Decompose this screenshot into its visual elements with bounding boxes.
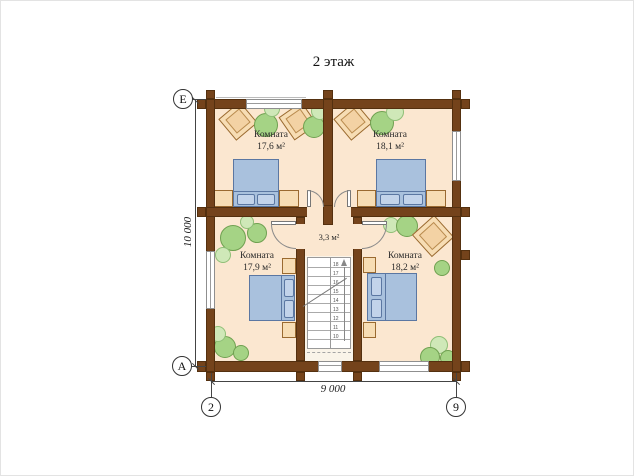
stair-step-number: 18 [333,262,339,268]
log-end [296,372,305,381]
nightstand [426,190,446,207]
log-end [461,361,470,372]
stair-step-number: 11 [333,325,338,331]
axis-marker-col-right: 9 [446,397,466,417]
pillow [257,194,275,205]
dimension-label-horizontal: 9 000 [283,383,383,395]
floor-plan: 2 этаж Комната 17,6 м² Комната 18,1 м² К… [0,0,634,476]
stair-step-number: 14 [333,298,339,304]
stair-step-number: 10 [333,334,339,340]
log-end [323,205,333,225]
window [206,251,215,309]
axis-leader-line [211,373,212,397]
room-name: Комната [340,129,440,141]
dimension-line-horizontal [211,381,456,382]
room-name: Комната [207,250,307,262]
log-end [206,90,215,99]
room-name: Комната [355,250,455,262]
room-area: 17,6 м² [221,141,321,153]
axis-marker-top: Е [173,89,193,109]
axis-marker-bottom: А [172,356,192,376]
stair-step-number: 15 [333,289,339,295]
bed-blanket-line [376,191,426,192]
axis-leader-line [192,366,206,367]
plant [240,215,254,229]
room-label-top-right: Комната 18,1 м² [340,129,440,153]
pillow [237,194,255,205]
room-label-bottom-left: Комната 17,9 м² [207,250,307,274]
nightstand [279,190,299,207]
wall-left [206,99,215,372]
dimension-line-vertical [195,100,196,367]
plant [233,345,249,361]
door-opening [333,207,351,217]
pillow [403,194,423,205]
nightstand [214,190,233,207]
log-end [461,250,470,260]
window [318,361,342,372]
stair-step-number: 17 [333,271,339,277]
door-opening [353,224,362,249]
stair-step-number: 12 [333,316,339,322]
log-end [323,90,333,99]
room-label-bottom-right: Комната 18,2 м² [355,250,455,274]
hall-area-label: 3,3 м² [305,232,353,242]
log-end [461,99,470,109]
nightstand [357,190,376,207]
page-title: 2 этаж [206,54,461,71]
bed-blanket-line [281,275,282,321]
wall-divider-upper [323,99,333,217]
log-end [197,207,206,217]
pillow [284,300,294,318]
window [246,99,302,109]
door-opening [296,224,305,249]
axis-leader-line [456,373,457,397]
axis-marker-col-left: 2 [201,397,221,417]
bed-blanket-line [385,273,386,321]
bed-blanket-line [233,191,279,192]
stair-up-arrow-icon [341,259,347,266]
window-sill-line [216,97,306,98]
log-end [353,372,362,381]
window [379,361,429,372]
pillow [380,194,400,205]
pillow [284,279,294,297]
room-area: 17,9 м² [207,262,307,274]
stair-landing-line [307,352,351,353]
room-label-top-left: Комната 17,6 м² [221,129,321,153]
room-area: 18,2 м² [355,262,455,274]
room-area: 18,1 м² [340,141,440,153]
window [452,131,461,181]
pillow [371,299,382,318]
room-name: Комната [221,129,321,141]
log-end [461,207,470,217]
stair-step-number: 13 [333,307,339,313]
nightstand [363,322,376,338]
door-opening [307,207,323,217]
dimension-label-vertical: 10 000 [182,202,194,262]
wall-top [206,99,461,109]
stair-center-line [330,257,331,349]
armchair-seat [419,222,447,250]
log-end [452,90,461,99]
axis-leader-line [193,99,206,100]
nightstand [282,322,296,338]
pillow [371,277,382,296]
